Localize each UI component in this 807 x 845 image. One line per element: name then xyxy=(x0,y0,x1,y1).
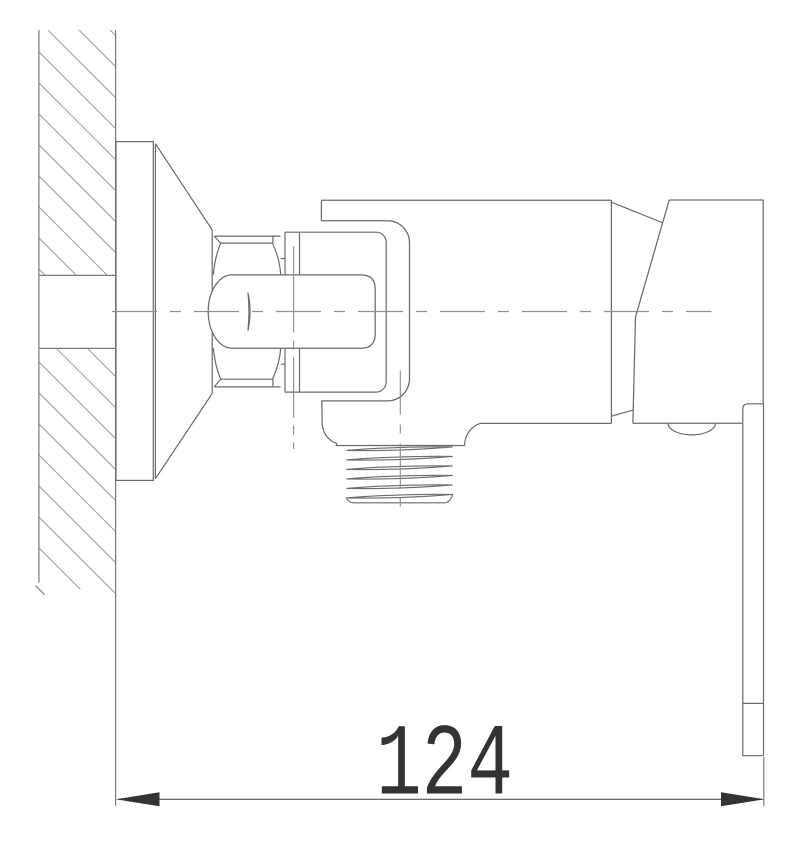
svg-text:124: 124 xyxy=(376,709,513,825)
